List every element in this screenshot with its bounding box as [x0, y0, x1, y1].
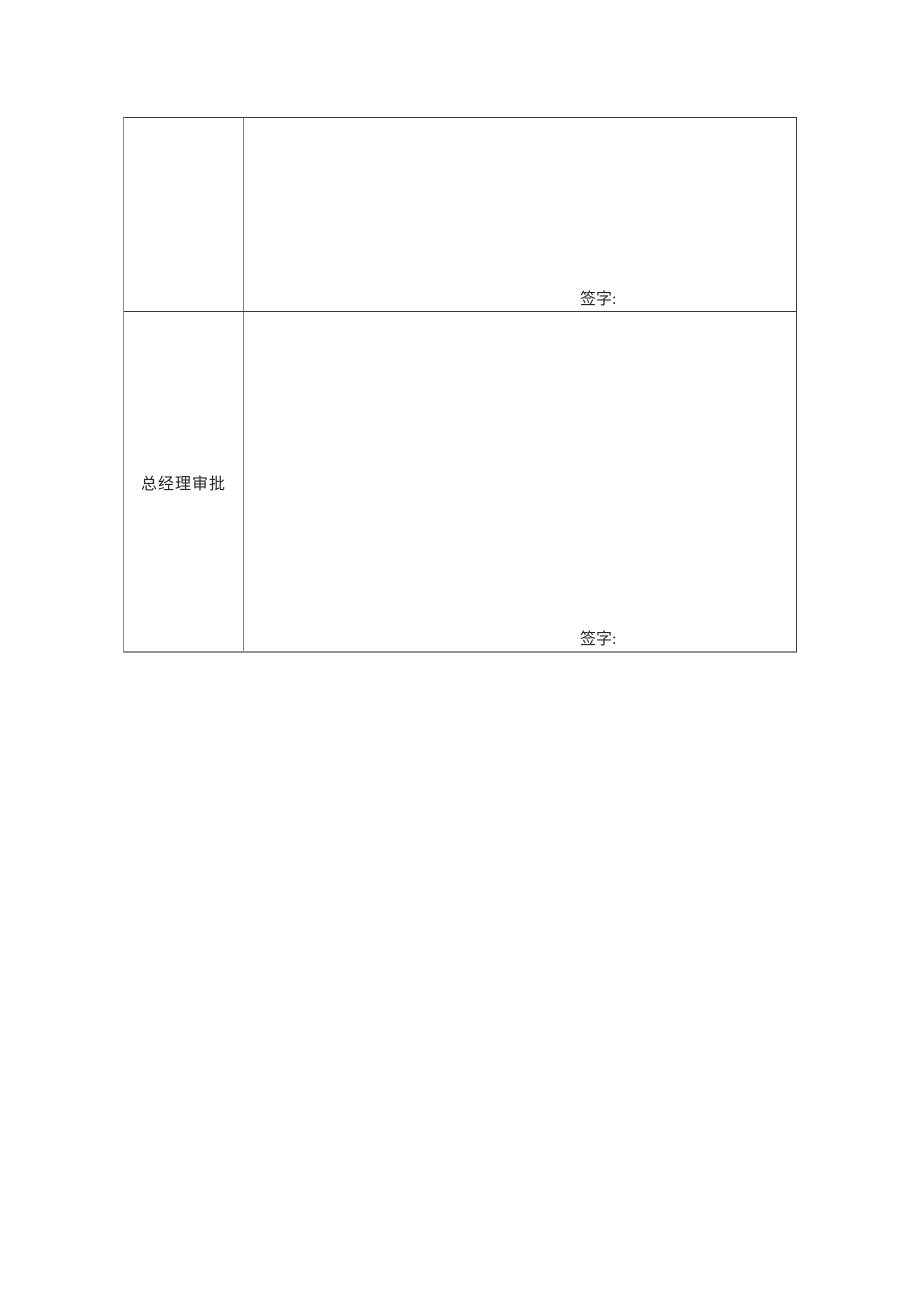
approver-label-cell: 总经理审批 [124, 312, 244, 651]
signature-label: 签字: [580, 630, 616, 649]
approval-content-cell[interactable]: 签字: [244, 118, 796, 311]
approver-label-cell [124, 118, 244, 311]
document-page: 签字: 总经理审批 签字: [0, 0, 920, 1301]
approver-label: 总经理审批 [141, 470, 226, 494]
signature-label: 签字: [580, 290, 616, 309]
table-row: 签字: [124, 118, 796, 312]
table-row: 总经理审批 签字: [124, 312, 796, 651]
approval-content-cell[interactable]: 签字: [244, 312, 796, 651]
approval-table: 签字: 总经理审批 签字: [123, 117, 797, 653]
